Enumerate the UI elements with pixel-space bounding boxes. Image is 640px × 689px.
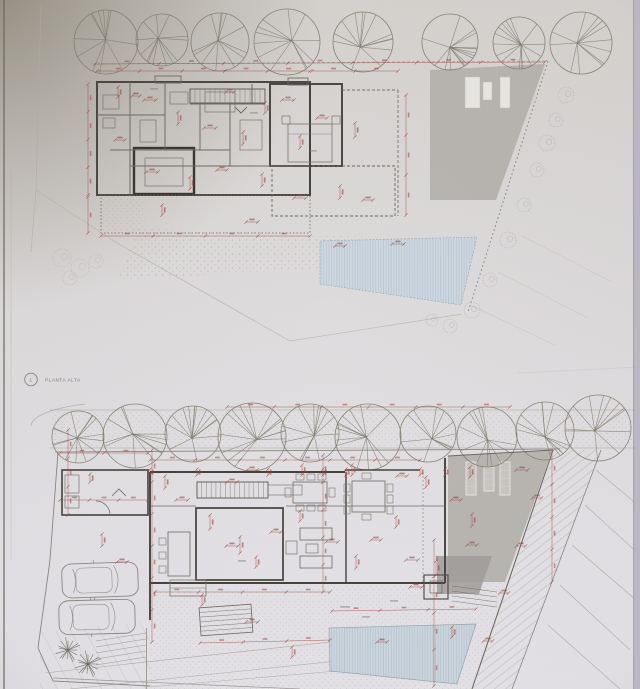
paper-edges-shadow — [0, 0, 640, 689]
photo-of-plan-sheet: 1 PLANTA ALTA — [0, 0, 640, 689]
architectural-drawing: 1 PLANTA ALTA — [0, 0, 640, 689]
